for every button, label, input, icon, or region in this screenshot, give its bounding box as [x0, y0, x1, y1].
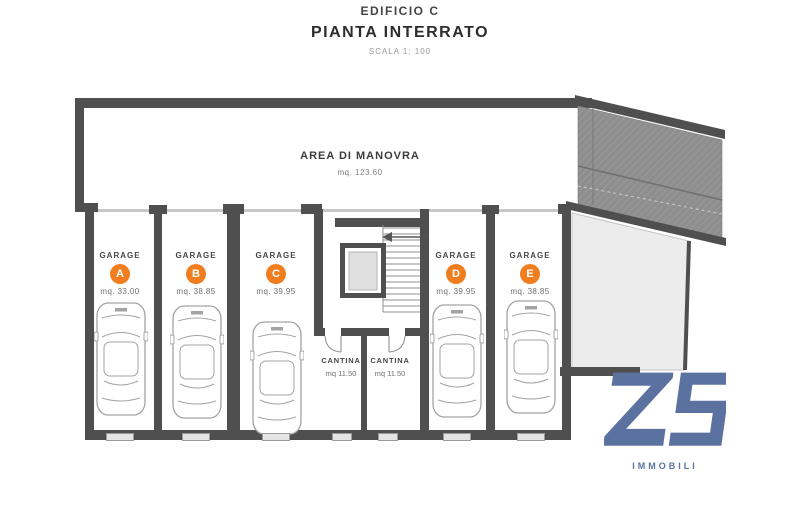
cantina-2-size: mq 11.50	[360, 369, 420, 378]
wall-divider-de	[486, 209, 495, 432]
wall-top	[75, 98, 592, 108]
floorplan-canvas: EDIFICIO C PIANTA INTERRATO SCALA 1: 100	[0, 0, 800, 508]
garage-c-size: mq. 39.95	[246, 287, 306, 296]
car-garage-c	[250, 320, 304, 438]
stair-core	[300, 200, 435, 445]
car-garage-a	[94, 301, 148, 419]
car-garage-e	[504, 299, 558, 417]
ramp-and-courtyard	[555, 88, 800, 388]
manoeuvre-area-title: AREA DI MANOVRA	[280, 150, 440, 162]
wall-left-lower	[85, 203, 94, 440]
garage-b-badge: B	[186, 264, 206, 284]
window-garage-e	[517, 433, 545, 441]
garage-d-label: GARAGE D mq. 39.95	[426, 251, 486, 296]
garage-a-size: mq. 33.00	[90, 287, 150, 296]
wall-left-upper	[75, 98, 84, 212]
zs-immobili-logo: IMMOBILI	[598, 370, 732, 471]
cantina-2-label: CANTINA mq 11.50	[360, 356, 420, 378]
garage-b-label: GARAGE B mq. 38.85	[166, 251, 226, 296]
garage-a-label: GARAGE A mq. 33.00	[90, 251, 150, 296]
manoeuvre-area-size: mq. 123.60	[280, 168, 440, 177]
manoeuvre-area-label: AREA DI MANOVRA mq. 123.60	[280, 150, 440, 177]
window-cantina-1	[332, 433, 352, 441]
garage-b-size: mq. 38.85	[166, 287, 226, 296]
garage-e-badge: E	[520, 264, 540, 284]
window-garage-c	[262, 433, 290, 441]
window-garage-a	[106, 433, 134, 441]
garage-e-label: GARAGE E mq. 38.85	[500, 251, 560, 296]
courtyard	[560, 213, 689, 376]
window-garage-b	[182, 433, 210, 441]
garage-c-badge: C	[266, 264, 286, 284]
garage-a-badge: A	[110, 264, 130, 284]
logo-wordmark: IMMOBILI	[598, 461, 732, 471]
window-garage-d	[443, 433, 471, 441]
window-cantina-2	[378, 433, 398, 441]
car-garage-b	[170, 304, 224, 422]
garage-c-label: GARAGE C mq. 39.95	[246, 251, 306, 296]
wall-divider-bc	[227, 209, 240, 432]
car-garage-d	[430, 303, 484, 421]
garage-d-badge: D	[446, 264, 466, 284]
zs-monogram-icon	[604, 370, 726, 454]
elevator	[340, 243, 386, 298]
cantina-door-arcs	[325, 336, 405, 352]
garage-e-size: mq. 38.85	[500, 287, 560, 296]
wall-divider-ab	[154, 209, 162, 432]
garage-d-size: mq. 39.95	[426, 287, 486, 296]
